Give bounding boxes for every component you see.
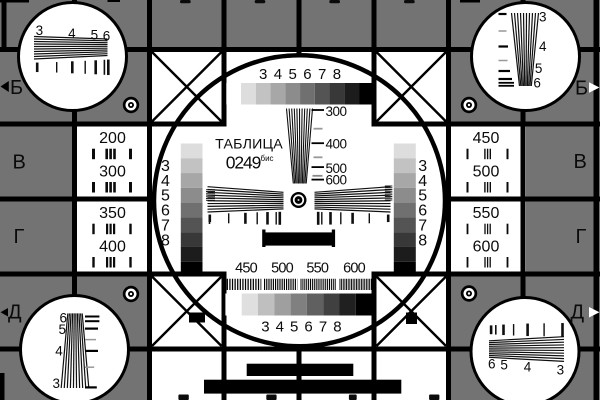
svg-text:5: 5 (288, 66, 296, 83)
svg-text:4: 4 (539, 39, 547, 54)
svg-text:7: 7 (319, 319, 327, 336)
svg-text:5: 5 (91, 28, 99, 43)
svg-text:4: 4 (68, 26, 76, 41)
svg-text:450: 450 (473, 130, 500, 147)
svg-text:Г: Г (14, 226, 25, 248)
svg-text:550: 550 (306, 261, 329, 277)
svg-text:В: В (574, 151, 587, 173)
svg-text:Б: Б (575, 78, 588, 100)
svg-text:600: 600 (473, 238, 500, 255)
svg-text:3: 3 (36, 23, 44, 38)
svg-text:бис: бис (261, 154, 274, 163)
svg-text:6: 6 (103, 29, 111, 44)
svg-text:3: 3 (557, 362, 565, 377)
svg-text:300: 300 (326, 104, 347, 119)
svg-text:500: 500 (473, 163, 500, 180)
svg-text:4: 4 (55, 343, 63, 358)
svg-text:550: 550 (473, 205, 500, 222)
svg-text:600: 600 (326, 173, 347, 188)
svg-text:6: 6 (488, 356, 496, 371)
svg-text:Д: Д (8, 302, 22, 324)
svg-text:450: 450 (235, 261, 258, 277)
svg-text:8: 8 (333, 66, 341, 83)
svg-text:5: 5 (290, 319, 298, 336)
svg-text:500: 500 (271, 261, 294, 277)
svg-text:6: 6 (304, 319, 312, 336)
svg-text:4: 4 (276, 319, 284, 336)
svg-text:Д: Д (571, 302, 585, 324)
svg-text:3: 3 (261, 319, 269, 336)
svg-text:3: 3 (53, 376, 61, 391)
svg-text:Г: Г (576, 226, 587, 248)
svg-text:350: 350 (99, 205, 126, 222)
svg-text:600: 600 (343, 261, 366, 277)
svg-text:400: 400 (99, 238, 126, 255)
svg-text:6: 6 (533, 76, 541, 91)
svg-text:3: 3 (259, 66, 267, 83)
svg-text:4: 4 (524, 360, 532, 375)
svg-text:5: 5 (535, 61, 543, 76)
svg-text:0249: 0249 (226, 153, 261, 173)
svg-text:Б: Б (10, 77, 23, 99)
svg-text:200: 200 (99, 130, 126, 147)
svg-text:6: 6 (303, 66, 311, 83)
svg-text:8: 8 (418, 232, 427, 249)
svg-text:8: 8 (333, 319, 341, 336)
svg-text:3: 3 (539, 9, 547, 24)
svg-text:ТАБЛИЦА: ТАБЛИЦА (215, 137, 283, 153)
svg-text:5: 5 (59, 322, 67, 337)
svg-text:7: 7 (318, 66, 326, 83)
svg-text:8: 8 (161, 232, 170, 249)
svg-text:4: 4 (274, 66, 282, 83)
svg-text:300: 300 (99, 163, 126, 180)
svg-text:В: В (13, 152, 26, 174)
svg-text:5: 5 (500, 358, 508, 373)
svg-text:400: 400 (326, 137, 347, 152)
